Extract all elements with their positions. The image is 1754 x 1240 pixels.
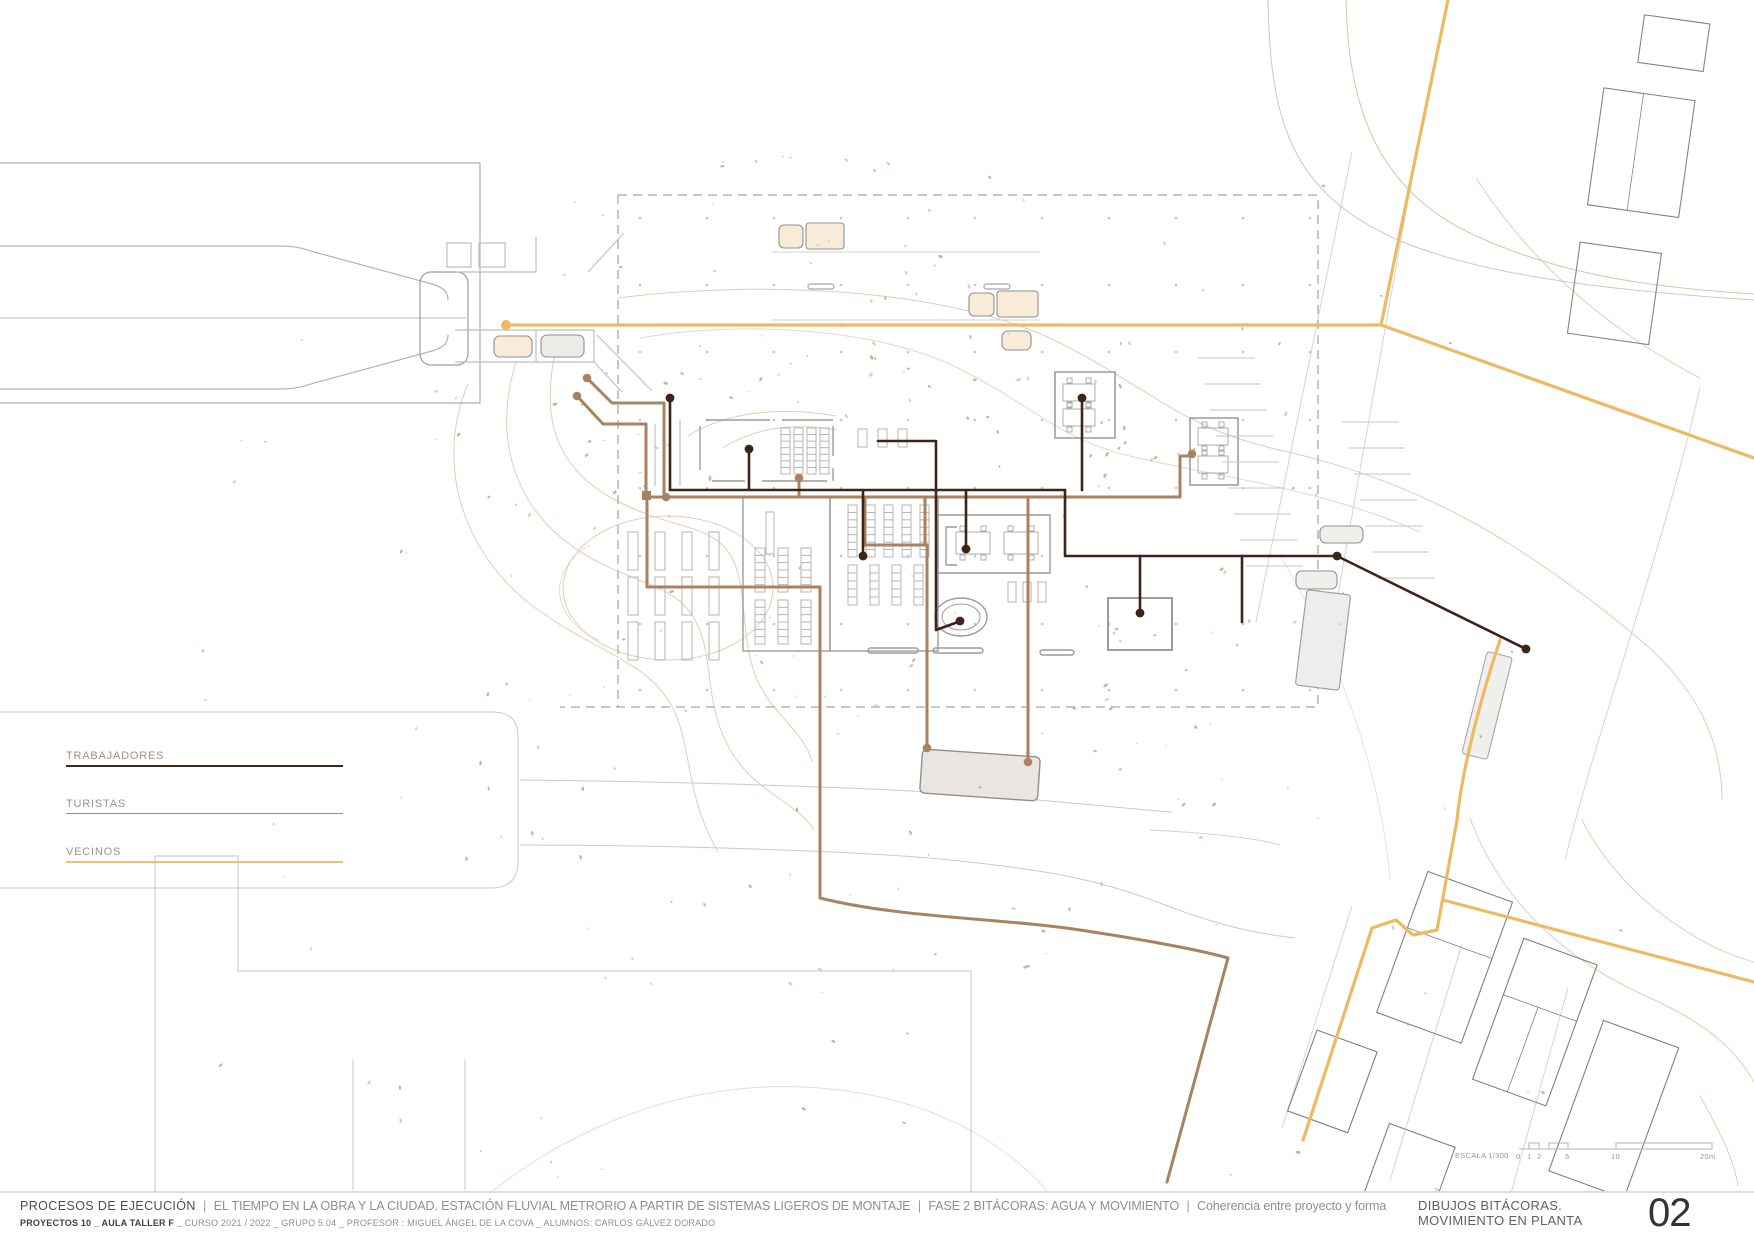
- scale-label: ESCALA 1/300: [1455, 1151, 1509, 1160]
- route-node: [573, 392, 582, 401]
- road-lines: [0, 0, 1754, 1240]
- route-node: [662, 493, 671, 502]
- structural-grid-dots: [639, 217, 1312, 692]
- route-node: [501, 320, 511, 330]
- route-node: [1024, 758, 1033, 767]
- legend-line-trabajadores: [66, 765, 343, 767]
- drawing-title-line1: DIBUJOS BITÁCORAS.: [1418, 1198, 1638, 1213]
- route-node: [956, 617, 965, 626]
- scale-tick: 0: [1516, 1152, 1520, 1161]
- car-icon: [1296, 571, 1337, 589]
- truck-icon: [779, 223, 844, 249]
- route-node: [1136, 609, 1145, 618]
- title-project: EL TIEMPO EN LA OBRA Y LA CIUDAD. ESTACI…: [214, 1199, 911, 1213]
- scale-tick: 20m: [1700, 1152, 1716, 1161]
- legend-label: TRABAJADORES: [66, 750, 343, 762]
- route-node: [583, 374, 592, 383]
- route-node: [859, 552, 868, 561]
- legend-line-vecinos: [66, 861, 343, 863]
- sheet-title: PROCESOS DE EJECUCIÓN | EL TIEMPO EN LA …: [20, 1199, 1290, 1213]
- legend-item-turistas: TURISTAS: [66, 798, 343, 814]
- drawing-title-line2: MOVIMIENTO EN PLANTA: [1418, 1213, 1638, 1228]
- scale-tick: 1: [1527, 1152, 1531, 1161]
- route-node: [745, 445, 754, 454]
- title-section: PROCESOS DE EJECUCIÓN: [20, 1199, 196, 1213]
- route-node: [666, 394, 675, 403]
- scale-tick: 2: [1537, 1152, 1541, 1161]
- legend-item-trabajadores: TRABAJADORES: [66, 750, 343, 767]
- page-number: 02: [1648, 1191, 1691, 1236]
- legend-line-turistas: [66, 813, 343, 814]
- scale-tick: 5: [1565, 1152, 1569, 1161]
- route-node: [1188, 450, 1197, 459]
- route-node: [923, 744, 932, 753]
- route-turistas: [573, 374, 1228, 1182]
- contour-lines: [438, 0, 1754, 1240]
- course-credits: PROYECTOS 10 _ AULA TALLER F _ CURSO 202…: [20, 1218, 1290, 1228]
- legend-item-vecinos: VECINOS: [66, 846, 343, 863]
- route-node: [962, 545, 971, 554]
- van-icon: [494, 336, 532, 357]
- car-icon: [1320, 526, 1363, 543]
- parking-stalls: [1198, 358, 1435, 578]
- route-node: [1078, 394, 1087, 403]
- van-icon: [1002, 331, 1031, 350]
- route-node: [1522, 645, 1531, 654]
- course-id: PROYECTOS 10 _ AULA TALLER F _: [20, 1218, 182, 1228]
- legend-label: VECINOS: [66, 846, 343, 858]
- course-details: CURSO 2021 / 2022 _ GRUPO 5.04 _ PROFESO…: [185, 1218, 715, 1228]
- drawing-sheet: TRABAJADORES TURISTAS VECINOS ESCALA 1/3…: [0, 0, 1754, 1240]
- site-plan-drawing: [0, 0, 1754, 1240]
- route-node: [1333, 552, 1342, 561]
- route-node: [795, 474, 804, 483]
- drawing-title: DIBUJOS BITÁCORAS. MOVIMIENTO EN PLANTA: [1418, 1198, 1638, 1228]
- legend-label: TURISTAS: [66, 798, 343, 810]
- scale-tick: 10: [1611, 1152, 1620, 1161]
- slab: [1295, 590, 1350, 691]
- route-node: [642, 491, 651, 500]
- title-block: PROCESOS DE EJECUCIÓN | EL TIEMPO EN LA …: [0, 1191, 1754, 1240]
- title-phase: FASE 2 BITÁCORAS: AGUA Y MOVIMIENTO: [928, 1199, 1179, 1213]
- van-icon: [541, 335, 584, 357]
- title-note: Coherencia entre proyecto y forma: [1197, 1199, 1386, 1213]
- platform-slab: [920, 749, 1041, 801]
- scale-bar: [1519, 1143, 1712, 1149]
- truck-icon: [969, 291, 1038, 317]
